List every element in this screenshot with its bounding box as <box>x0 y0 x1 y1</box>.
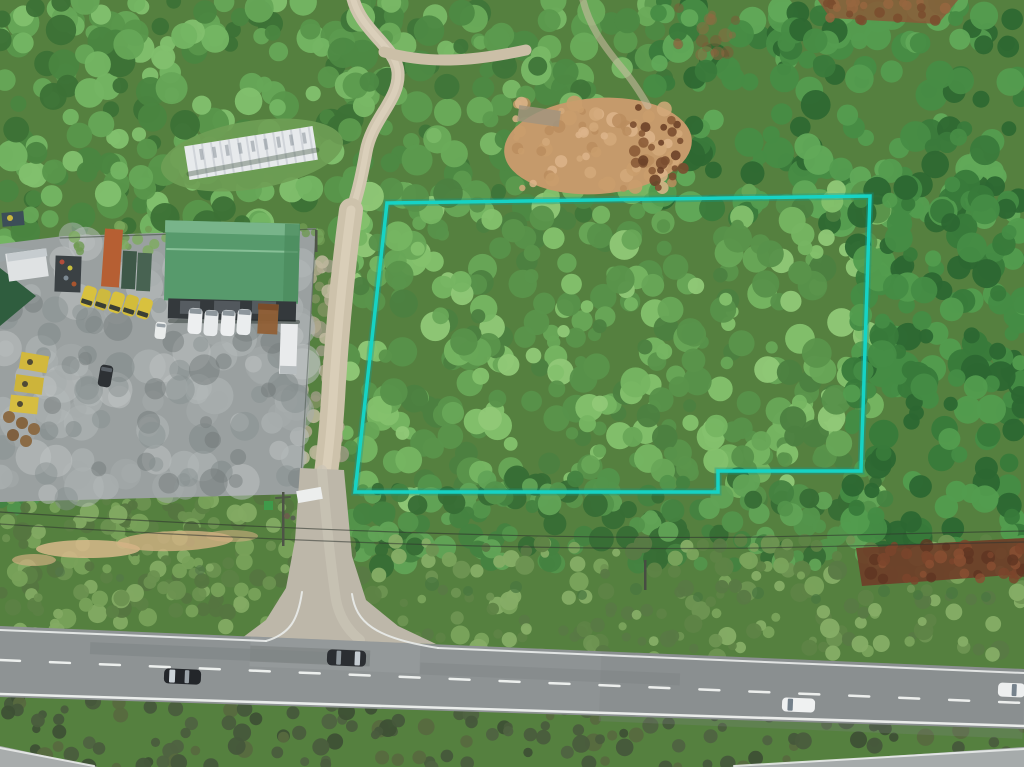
forest-parcel-interior <box>566 427 578 439</box>
forest-parcel-interior <box>752 270 779 297</box>
red-dirt-texture <box>878 574 888 584</box>
forest-top-left <box>193 0 217 24</box>
grass-left <box>79 598 93 612</box>
forest-top-left <box>137 139 157 159</box>
mailbox-cluster <box>291 516 296 521</box>
grass-right-slope <box>858 590 874 606</box>
green-container <box>121 251 137 290</box>
forest-parcel-interior <box>621 367 651 397</box>
median-grass <box>52 725 66 739</box>
vehicle-glass <box>169 669 175 682</box>
forest-top-left <box>75 78 105 108</box>
forest-parcel-interior <box>548 380 565 397</box>
grass-right-slope <box>820 619 840 639</box>
forest-below-parcel <box>408 495 428 515</box>
median-grass <box>53 714 64 725</box>
forest-parcel-interior <box>524 269 538 283</box>
grass-right-slope <box>804 576 824 596</box>
clearing-texture <box>622 127 631 136</box>
forest-parcel-interior <box>478 407 502 431</box>
median-grass <box>460 735 472 747</box>
grass-left <box>234 596 247 609</box>
red-dirt-texture <box>987 562 996 571</box>
red-dirt-texture <box>1007 554 1018 565</box>
grass-right-slope <box>832 551 842 561</box>
forest-parcel-interior <box>663 254 689 280</box>
grass-left <box>172 564 187 579</box>
grass-left <box>178 511 188 521</box>
clearing-texture <box>545 126 554 135</box>
forest-below-parcel <box>542 558 555 571</box>
median-grass <box>191 746 201 756</box>
dirt-top-right-texture <box>825 13 835 23</box>
forest-top-right <box>741 161 765 185</box>
forest-parcel-interior <box>401 184 429 212</box>
forest-parcel-interior <box>395 447 422 474</box>
grass-right-slope <box>684 615 702 633</box>
grass-right-slope <box>534 536 551 553</box>
grass-right-slope <box>746 623 762 639</box>
forest-right-edge <box>972 259 1001 288</box>
concrete-stains <box>193 337 208 352</box>
roof-rib <box>278 137 280 148</box>
forest-top-left <box>46 15 76 45</box>
red-dirt-texture <box>901 548 912 559</box>
concrete-stains <box>55 487 78 510</box>
forest-top-left <box>201 25 229 53</box>
rubble-pile <box>671 150 681 160</box>
median-grass <box>607 730 617 740</box>
rubble-pile <box>635 104 642 111</box>
grass-right-slope <box>706 596 717 607</box>
forest-top-right <box>794 133 820 159</box>
grass-left <box>274 573 289 588</box>
median-grass <box>375 751 389 765</box>
dirt-top-right-texture <box>855 15 865 25</box>
grass-left <box>248 588 261 601</box>
clearing-texture <box>612 114 627 129</box>
vehicle-glass <box>190 308 202 314</box>
forest-right-edge <box>941 213 960 232</box>
forest-parcel-interior <box>388 337 417 366</box>
forest-right-edge <box>900 511 921 532</box>
concrete-stains <box>149 457 163 471</box>
red-dirt-texture <box>877 553 890 566</box>
bush <box>195 565 205 575</box>
forest-below-parcel <box>353 503 375 525</box>
clearing-texture <box>589 122 598 131</box>
junk-item <box>68 266 73 271</box>
bush <box>752 587 764 599</box>
median-grass <box>850 731 867 748</box>
grass-left <box>114 590 130 606</box>
grass-right-slope <box>625 543 643 561</box>
forest-parcel-interior <box>778 453 792 467</box>
grass-left <box>211 583 226 598</box>
clearing-texture <box>628 180 642 194</box>
forest-top-right <box>803 28 828 53</box>
forest-right-edge <box>911 374 938 401</box>
grass-right-slope <box>734 534 747 547</box>
grass-left <box>167 581 186 600</box>
forest-right-edge <box>912 311 931 330</box>
grass-right-slope <box>771 613 780 622</box>
median-grass <box>629 728 644 743</box>
grass-right-slope <box>372 568 387 583</box>
forest-below-parcel <box>596 477 609 490</box>
forest-top-left <box>67 123 93 149</box>
grass-right-slope <box>470 564 483 577</box>
concrete-stains <box>230 449 246 465</box>
dirt-top-right-texture <box>893 14 902 23</box>
forest-parcel-interior <box>623 427 643 447</box>
red-dirt-texture <box>910 576 918 584</box>
roadside-scrub <box>311 391 322 402</box>
forest-top-right <box>921 151 949 179</box>
red-dirt-texture <box>998 568 1009 579</box>
median-grass <box>31 714 45 728</box>
grass-left <box>73 584 89 600</box>
forest-parcel-interior <box>543 227 565 249</box>
green-roof-shade <box>283 224 300 302</box>
grass-right-slope <box>715 580 728 593</box>
forest-top-right <box>997 36 1019 58</box>
utility-truck <box>1 211 24 227</box>
median-grass <box>441 750 454 763</box>
forest-top-right <box>643 74 667 98</box>
median-grass <box>889 733 898 742</box>
grass-right-slope <box>728 579 742 593</box>
aerial-photo-stage <box>0 0 1024 767</box>
concrete-stains <box>230 412 259 441</box>
forest-top-left <box>41 185 63 207</box>
forest-parcel-interior <box>450 328 477 355</box>
median-grass <box>180 728 190 738</box>
bush <box>510 581 522 593</box>
red-dirt-texture <box>864 567 877 580</box>
forest-parcel-interior <box>481 209 502 230</box>
dark-suv-at-junction-body <box>327 649 367 667</box>
rubble-pile <box>638 155 648 165</box>
median-grass <box>1 706 15 720</box>
forest-parcel-interior <box>622 229 642 249</box>
grass-right-slope <box>451 611 464 624</box>
grass-right-slope <box>751 571 761 581</box>
grass-right-slope <box>801 640 817 656</box>
forest-parcel-interior <box>592 206 610 224</box>
green-sign <box>264 501 273 510</box>
clearing-texture <box>601 132 608 139</box>
concrete-stains <box>103 312 132 341</box>
forest-right-edge <box>883 274 909 300</box>
forest-top-left <box>22 207 39 224</box>
dirt-top-right-texture <box>860 2 867 9</box>
forest-parcel-interior <box>396 426 410 440</box>
forest-parcel-interior <box>587 223 613 249</box>
concrete-stains <box>229 474 243 488</box>
grass-tufts <box>74 241 85 252</box>
bush <box>878 585 890 597</box>
median-grass <box>292 726 306 740</box>
grass-left <box>130 514 150 534</box>
forest-top-left <box>26 190 43 207</box>
grass-left <box>236 553 253 570</box>
forest-parcel-interior <box>561 274 582 295</box>
forest-top-center <box>414 15 445 46</box>
forest-parcel-interior <box>558 212 576 230</box>
forest-top-right <box>735 128 764 157</box>
red-dirt-texture <box>902 574 911 583</box>
power-pole <box>644 560 647 590</box>
forest-parcel-interior <box>754 356 781 383</box>
median-grass <box>595 734 605 744</box>
forest-below-parcel <box>676 476 690 490</box>
equipment-detail <box>27 359 33 365</box>
forest-top-right <box>1001 8 1023 30</box>
median-grass <box>151 738 160 747</box>
grass-right-slope <box>677 580 694 597</box>
forest-parcel-interior <box>606 265 634 293</box>
median-grass <box>573 724 584 735</box>
grass-right-slope <box>619 622 627 630</box>
median-grass <box>346 720 358 732</box>
forest-top-left <box>77 162 98 183</box>
concrete-stains <box>78 346 97 365</box>
forest-top-left <box>13 32 34 53</box>
rubble-pile <box>648 144 655 151</box>
grass-left <box>194 573 209 588</box>
concrete-stains <box>66 421 82 437</box>
forest-top-right <box>770 63 799 92</box>
roof-rib <box>303 133 305 144</box>
bush <box>693 592 703 602</box>
forest-parcel-interior <box>657 241 672 256</box>
red-dirt-texture <box>953 549 964 560</box>
forest-top-center <box>381 153 400 172</box>
rubble-pile <box>655 184 662 191</box>
grass-right-slope <box>781 539 793 551</box>
grass-left <box>130 556 139 565</box>
rubble-pile <box>677 138 683 144</box>
forest-floor-brown <box>708 11 716 19</box>
grass-left <box>206 564 214 572</box>
grass-right-slope <box>451 626 470 645</box>
grass-right-slope <box>638 637 647 646</box>
grass-right-slope <box>712 608 722 618</box>
grass-right-slope <box>773 558 789 574</box>
forest-right-edge <box>940 298 964 322</box>
forest-top-left <box>110 162 128 180</box>
bush <box>116 574 124 582</box>
forest-right-edge <box>1002 419 1024 442</box>
bush <box>946 587 958 599</box>
forest-parcel-interior <box>657 219 670 232</box>
grass-right-slope <box>598 583 614 599</box>
forest-right-edge <box>1000 454 1019 473</box>
forest-below-parcel <box>812 519 826 533</box>
forest-parcel-interior <box>579 415 596 432</box>
forest-below-parcel <box>744 491 762 509</box>
forest-top-left <box>170 110 200 140</box>
forest-below-parcel <box>644 510 659 525</box>
concrete-stains <box>35 462 58 485</box>
forest-parcel-interior <box>777 360 802 385</box>
grass-right-slope <box>569 572 588 591</box>
grass-left <box>218 619 233 634</box>
red-dirt-texture <box>920 539 933 552</box>
forest-right-edge <box>875 314 890 329</box>
vehicle-glass <box>336 651 341 665</box>
grass-left <box>186 605 199 618</box>
clearing-texture <box>591 147 602 158</box>
grass-right-slope <box>973 644 985 656</box>
forest-below-parcel <box>722 511 744 533</box>
rubble-pile <box>648 167 656 175</box>
rubble-pile <box>630 121 637 128</box>
white-van <box>220 310 236 337</box>
forest-top-right <box>845 65 874 94</box>
forest-top-right <box>721 67 744 90</box>
grass-left <box>144 576 157 589</box>
roadside-scrub <box>316 255 329 268</box>
concrete-stains <box>40 422 59 441</box>
forest-right-edge <box>964 327 980 343</box>
white-van <box>236 309 252 336</box>
median-grass <box>989 737 1000 748</box>
grass-right-slope <box>709 634 723 648</box>
forest-top-center <box>328 38 358 68</box>
forest-floor-brown <box>711 47 725 61</box>
grass-right-slope <box>562 591 576 605</box>
median-grass <box>392 754 404 766</box>
forest-top-right <box>949 29 970 50</box>
forest-parcel-interior <box>489 390 507 408</box>
grass-left <box>34 593 43 602</box>
brown-bale <box>7 429 19 441</box>
forest-below-parcel <box>502 526 518 542</box>
equipment-detail <box>22 381 28 387</box>
forest-top-left <box>3 117 29 143</box>
concrete-stains <box>145 378 166 399</box>
median-grass <box>312 738 329 755</box>
forest-parcel-interior <box>688 278 704 294</box>
median-grass <box>418 718 435 735</box>
median-grass <box>93 742 106 755</box>
grass-left <box>280 564 289 573</box>
clearing-texture <box>643 110 655 122</box>
median-grass <box>168 701 183 716</box>
forest-top-left <box>171 23 197 49</box>
dirt-top-right-texture <box>846 11 853 18</box>
forest-top-left <box>25 142 47 164</box>
white-car-right-edge <box>998 682 1024 697</box>
forest-right-edge <box>849 500 865 516</box>
red-dirt-texture <box>934 550 947 563</box>
median-grass <box>616 739 634 757</box>
grass-right-slope <box>774 581 785 592</box>
grass-right-slope <box>486 593 494 601</box>
grass-left <box>102 564 111 573</box>
grass-left <box>12 571 28 587</box>
forest-parcel-interior <box>498 354 520 376</box>
forest-top-right <box>948 11 963 26</box>
grass-right-slope <box>600 569 610 579</box>
forest-parcel-interior <box>826 430 852 456</box>
forest-parcel-interior <box>450 271 471 292</box>
forest-parcel-interior <box>721 357 734 370</box>
forest-floor-brown <box>731 16 740 25</box>
vehicle-glass <box>239 309 251 315</box>
clearing-texture <box>600 177 615 192</box>
vehicle-glass <box>184 670 189 683</box>
grass-left <box>219 604 236 621</box>
red-dirt-texture <box>975 573 985 583</box>
concrete-stains <box>92 410 110 428</box>
clearing-texture <box>542 138 550 146</box>
grass-right-slope <box>846 535 855 544</box>
grass-right-slope <box>481 543 490 552</box>
clearing-texture <box>584 167 596 179</box>
forest-below-parcel <box>375 543 388 556</box>
forest-top-right <box>974 35 993 54</box>
forest-parcel-interior <box>682 415 698 431</box>
median-grass <box>223 702 238 717</box>
grass-right-slope <box>502 632 517 647</box>
dark-suv-at-junction <box>327 649 367 667</box>
grass-right-slope <box>668 565 681 578</box>
grass-right-slope <box>907 585 915 593</box>
grass-right-slope <box>797 571 805 579</box>
grass-left <box>0 514 15 529</box>
grass-right-slope <box>825 646 840 661</box>
forest-parcel-interior <box>682 349 706 373</box>
white-car <box>154 321 167 339</box>
grass-tufts <box>145 226 152 233</box>
forest-right-edge <box>882 193 897 208</box>
forest-top-right <box>763 126 780 143</box>
concrete-stains <box>91 461 106 476</box>
grass-left <box>92 591 108 607</box>
grass-left <box>222 557 234 569</box>
median-grass <box>113 708 128 723</box>
forest-parcel-interior <box>514 326 536 348</box>
grass-left <box>139 608 157 626</box>
forest-parcel-interior <box>593 319 607 333</box>
grass-left <box>208 517 220 529</box>
grass-right-slope <box>750 543 759 552</box>
dirt-top-right-texture <box>930 15 941 26</box>
median-grass <box>392 714 405 727</box>
grass-left <box>266 518 281 533</box>
forest-top-center <box>570 33 598 61</box>
forest-parcel-interior <box>548 365 564 381</box>
clearing-texture <box>589 107 603 121</box>
forest-right-edge <box>961 484 980 503</box>
median-grass <box>322 714 338 730</box>
grass-right-slope <box>640 604 653 617</box>
forest-right-edge <box>944 397 958 411</box>
forest-top-left <box>41 210 58 227</box>
concrete-light-patches <box>245 356 262 373</box>
forest-floor-brown <box>674 3 684 13</box>
junk-item <box>60 260 65 265</box>
forest-top-left <box>156 72 188 104</box>
roof-rib <box>214 147 216 158</box>
bush <box>425 577 439 591</box>
forest-below-parcel <box>406 538 424 556</box>
forest-parcel-interior <box>652 425 678 451</box>
forest-parcel-interior <box>530 206 555 231</box>
